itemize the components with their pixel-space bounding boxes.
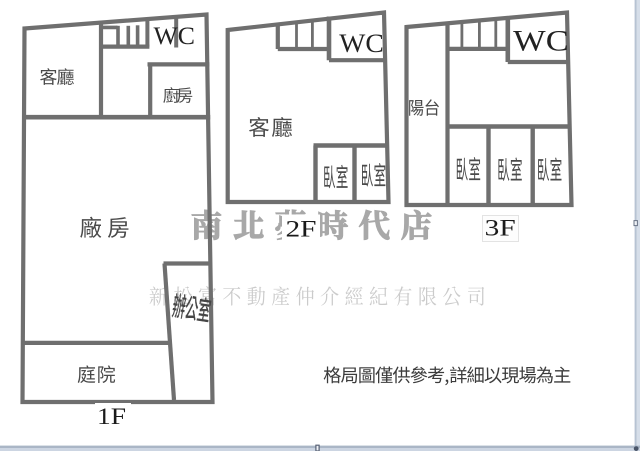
svg-text:1F: 1F — [97, 404, 126, 430]
svg-text:WC: WC — [339, 28, 384, 58]
svg-text:WC: WC — [513, 25, 569, 57]
svg-text:WC: WC — [154, 21, 196, 50]
svg-text:3F: 3F — [485, 216, 516, 241]
svg-text:2F: 2F — [286, 217, 317, 242]
